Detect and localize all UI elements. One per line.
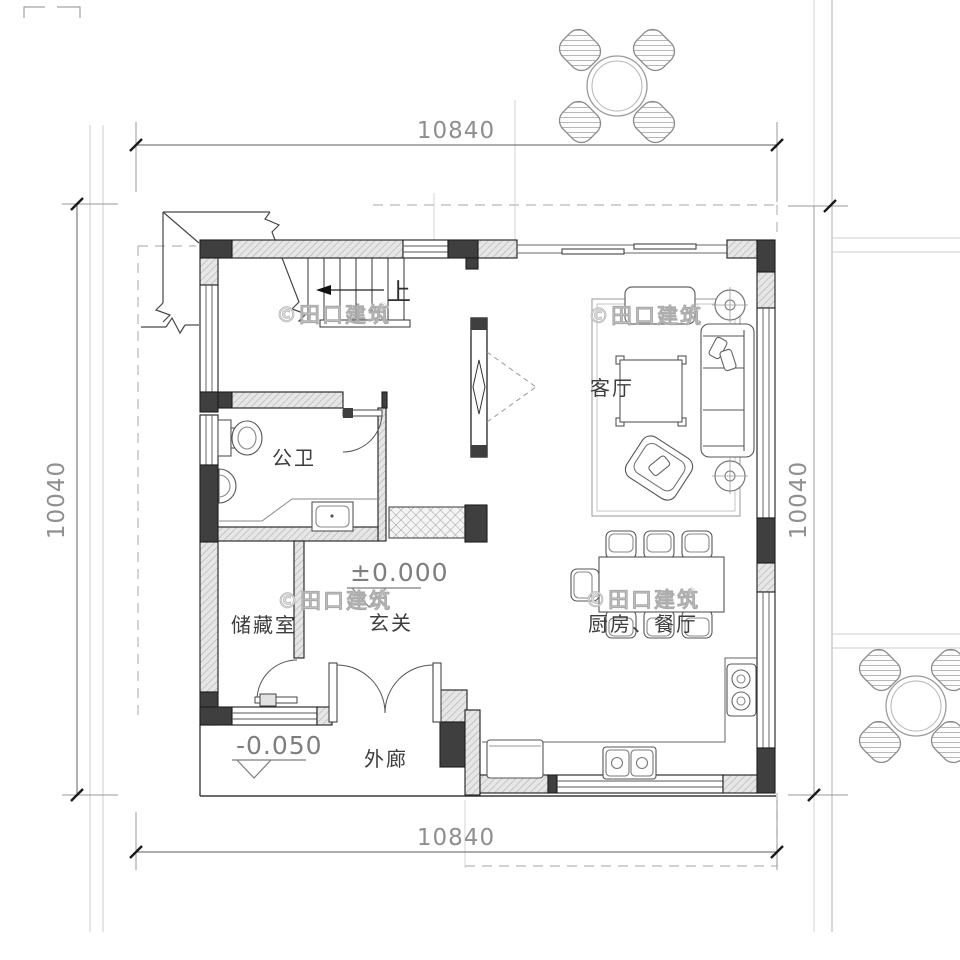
dimension-left-value: 10040 — [44, 461, 70, 539]
dimension-right: 10040 — [786, 200, 848, 801]
outdoor-table-bottom — [855, 645, 960, 768]
bathroom-floor-edge — [218, 499, 380, 521]
room-label-storage: 储藏室 — [231, 613, 297, 637]
watermark-text: ©田口建筑 — [276, 303, 391, 327]
foyer-screen — [471, 318, 536, 457]
side-table-bottom — [712, 458, 748, 494]
storage-door — [255, 660, 297, 706]
side-table-top — [712, 287, 748, 323]
outdoor-table-top — [555, 25, 680, 148]
dimension-right-value: 10040 — [786, 461, 812, 539]
bathroom-door — [343, 408, 382, 452]
floor-plan-canvas: 10840 10840 10040 10040 — [0, 0, 960, 960]
corner-basin — [219, 469, 236, 503]
watermark-text: ©田口建筑 — [585, 588, 700, 612]
entrance-double-door — [329, 663, 441, 722]
room-label-living: 客厅 — [590, 376, 634, 400]
vanity-sink — [312, 502, 353, 531]
level-porch-value: -0.050 — [236, 731, 323, 760]
dimension-bottom-value: 10840 — [417, 825, 495, 851]
dimension-top-value: 10840 — [417, 118, 495, 144]
watermark-reg-icon: ® — [378, 586, 389, 599]
gas-stove — [727, 664, 756, 716]
kitchen-sink — [603, 747, 656, 779]
room-label-kitchen-dining: 厨房、餐厅 — [588, 612, 698, 636]
watermark-reg-icon: ® — [689, 301, 700, 314]
dimension-left: 10040 — [44, 198, 118, 801]
level-marker-porch: -0.050 — [232, 731, 323, 778]
room-label-bathroom: 公卫 — [272, 446, 316, 470]
sofa — [701, 324, 754, 457]
room-label-foyer: 玄关 — [369, 611, 413, 635]
dimension-top: 10840 — [130, 118, 783, 202]
room-label-veranda: 外廊 — [364, 747, 408, 771]
watermark-text: ©田口建筑 — [277, 589, 392, 613]
kitchen-counter — [482, 658, 757, 742]
dimension-bottom: 10840 — [130, 800, 783, 870]
refrigerator — [487, 740, 543, 778]
watermark-reg-icon: ® — [377, 300, 388, 313]
stair-up-label: 上 — [387, 278, 411, 306]
level-indoor-value: ±0.000 — [350, 558, 449, 587]
watermark-text: ©田口建筑 — [588, 304, 703, 328]
toilet — [218, 420, 262, 456]
armchair — [622, 432, 697, 504]
watermark-reg-icon: ® — [686, 585, 697, 598]
